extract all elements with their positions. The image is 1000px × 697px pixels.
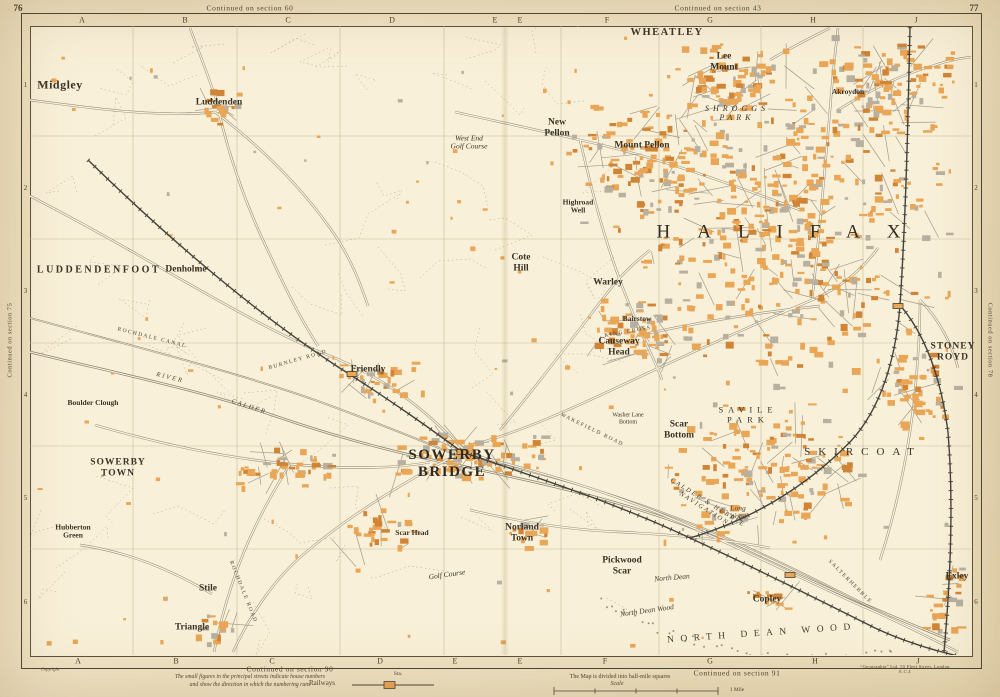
station-legend-label: Sta. — [394, 671, 402, 677]
grid-row-right: 2 — [974, 184, 978, 192]
grid-letter-top: H — [810, 15, 816, 24]
grid-letter-top: E — [518, 15, 523, 24]
half-mile-note: The Map is divided into half-mile square… — [570, 674, 671, 680]
wood-stipple-layer — [600, 598, 892, 662]
copyright-note: Copyright — [41, 667, 59, 672]
grid-row-right: 6 — [974, 598, 978, 606]
grid-letter-bottom: H — [812, 657, 818, 666]
grid-letter-bottom: A — [75, 657, 81, 666]
publisher-imprint: “Geographia” Ltd. 55 Fleet Street, Londo… — [858, 664, 953, 674]
continued-bottom-right: Continued on section 91 — [694, 669, 781, 678]
railway-legend-symbol — [348, 676, 438, 690]
grid-letter-top: J — [914, 15, 917, 24]
grid-row-right: 5 — [974, 494, 978, 502]
station-marker — [785, 573, 795, 578]
grid-letter-bottom: E — [518, 657, 523, 666]
grid-letter-top: B — [182, 15, 187, 24]
grid-row-right: 4 — [974, 391, 978, 399]
grid-letter-top: E — [493, 15, 498, 24]
station-marker — [893, 304, 903, 309]
grid-row-left: 5 — [24, 494, 28, 502]
grid-letter-bottom: E — [453, 657, 458, 666]
grid-letter-top: C — [285, 15, 290, 24]
grid-row-left: 2 — [24, 184, 28, 192]
grid-letter-top: D — [389, 15, 395, 24]
station-marker — [457, 450, 467, 455]
grid-row-right: 1 — [974, 81, 978, 89]
grid-row-left: 1 — [24, 81, 28, 89]
mile-label: 1 Mile — [730, 687, 745, 693]
atlas-map-page: 76 77 Continued on section 60 Continued … — [0, 0, 1000, 697]
grid-letter-bottom: B — [173, 657, 178, 666]
grid-row-left: 3 — [24, 287, 28, 295]
grid-row-left: 6 — [24, 598, 28, 606]
station-marker — [347, 372, 357, 377]
grid-letter-bottom: D — [377, 657, 383, 666]
grid-letter-top: G — [707, 15, 713, 24]
page-fold — [501, 26, 509, 655]
scale-bar — [552, 686, 722, 696]
grid-letter-top: A — [79, 15, 85, 24]
field-boundaries-layer — [31, 18, 637, 658]
streets-layer — [195, 38, 962, 641]
grid-letter-bottom: F — [603, 657, 607, 666]
map-canvas — [0, 0, 1000, 697]
house-numbers-note: The small figures in the principal stree… — [175, 673, 325, 689]
grid-letter-top: F — [605, 15, 609, 24]
grid-row-right: 3 — [974, 287, 978, 295]
grid-row-left: 4 — [24, 391, 28, 399]
railways-legend-label: Railways — [309, 679, 335, 687]
grid-letter-bottom: G — [707, 657, 713, 666]
